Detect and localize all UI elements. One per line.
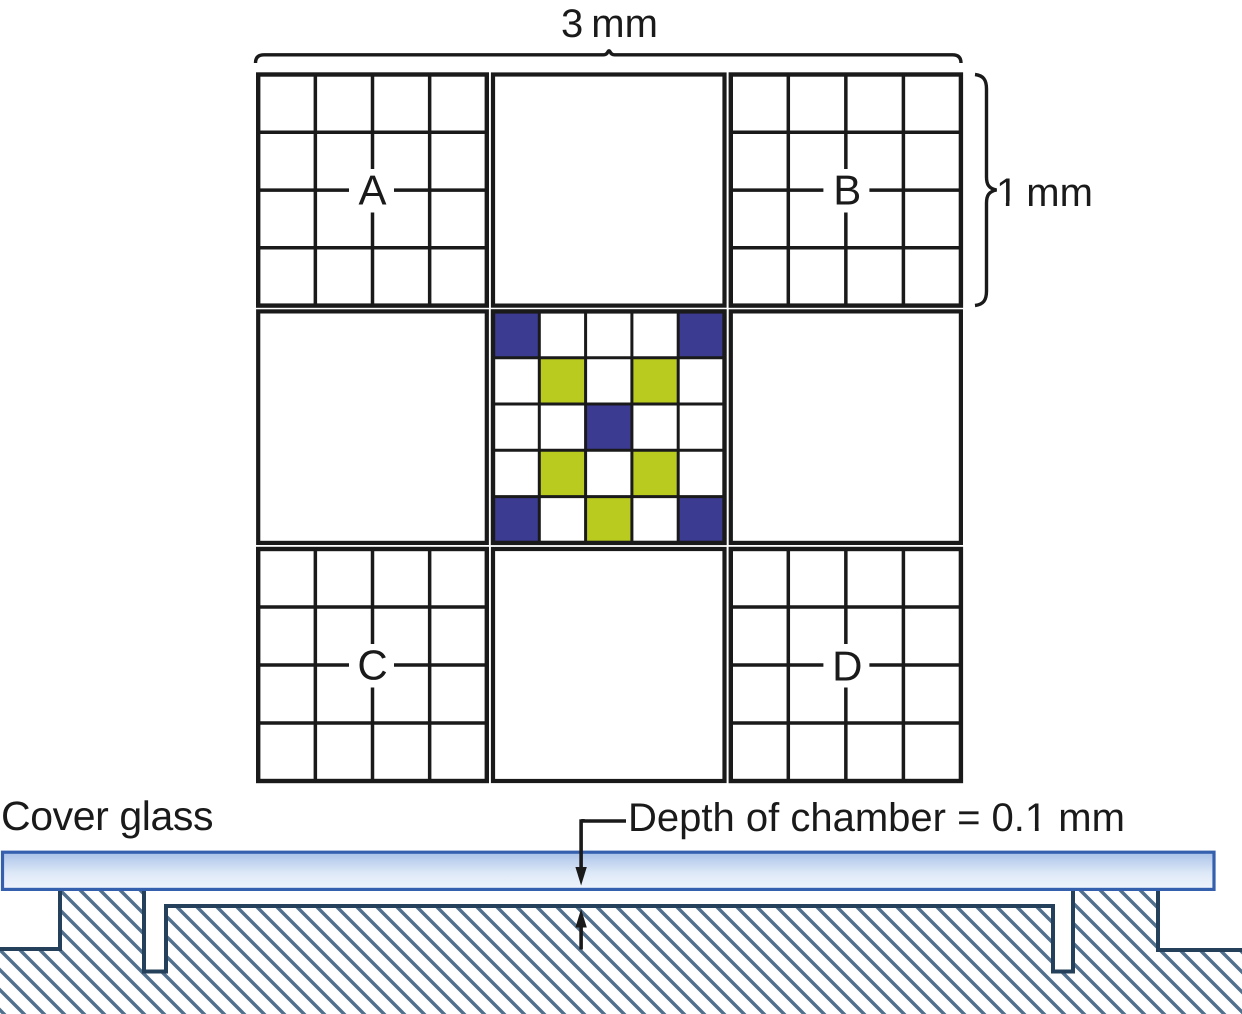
svg-text:C: C: [357, 642, 387, 689]
svg-text:1 mm: 1 mm: [996, 171, 1093, 215]
svg-text:D: D: [832, 643, 862, 690]
svg-text:A: A: [358, 167, 386, 214]
svg-text:3 mm: 3 mm: [561, 2, 658, 46]
svg-text:Depth of chamber = 0.1 mm: Depth of chamber = 0.1 mm: [628, 796, 1125, 840]
svg-text:Cover glass: Cover glass: [1, 793, 213, 839]
svg-text:B: B: [833, 167, 861, 214]
